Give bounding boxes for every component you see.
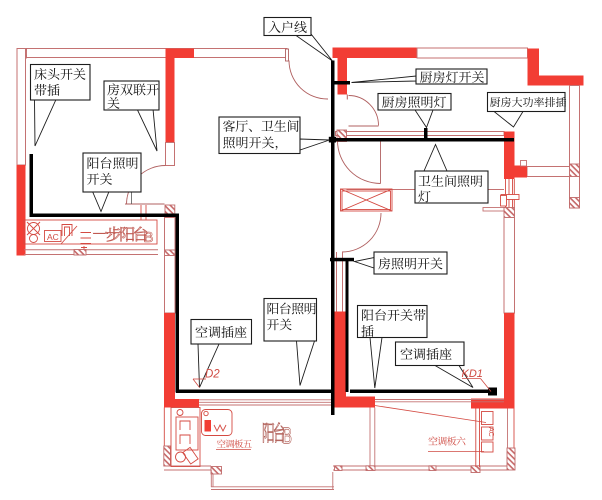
svg-text:B: B bbox=[144, 229, 154, 246]
svg-text:AC: AC bbox=[487, 427, 494, 437]
svg-text:AC: AC bbox=[47, 232, 59, 242]
svg-text:B: B bbox=[283, 424, 293, 449]
svg-text:D2: D2 bbox=[205, 369, 220, 381]
